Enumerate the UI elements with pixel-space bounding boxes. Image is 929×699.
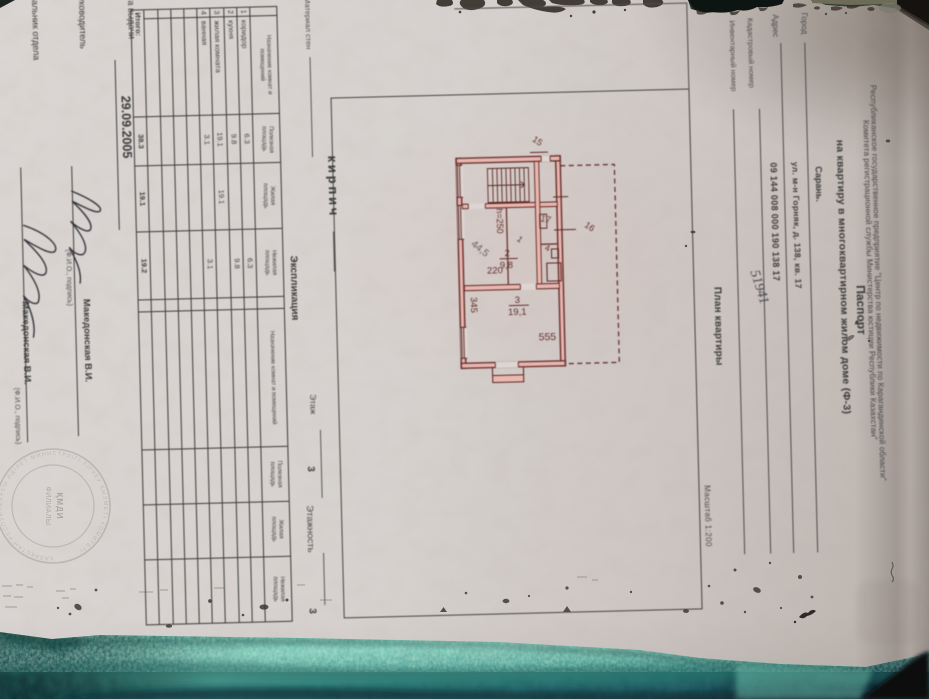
svg-text:1: 1 (515, 234, 525, 245)
svg-text:220: 220 (487, 265, 503, 276)
svg-text:19,1: 19,1 (508, 307, 527, 318)
svg-text:345: 345 (468, 297, 479, 313)
svg-text:h=250: h=250 (494, 208, 505, 234)
svg-text:15: 15 (531, 134, 545, 148)
svg-text:555: 555 (539, 331, 557, 343)
svg-text:16: 16 (583, 220, 597, 234)
svg-text:3: 3 (515, 295, 521, 306)
svg-text:44,5: 44,5 (469, 239, 491, 260)
svg-text:17: 17 (539, 213, 552, 226)
svg-text:2: 2 (504, 248, 510, 259)
